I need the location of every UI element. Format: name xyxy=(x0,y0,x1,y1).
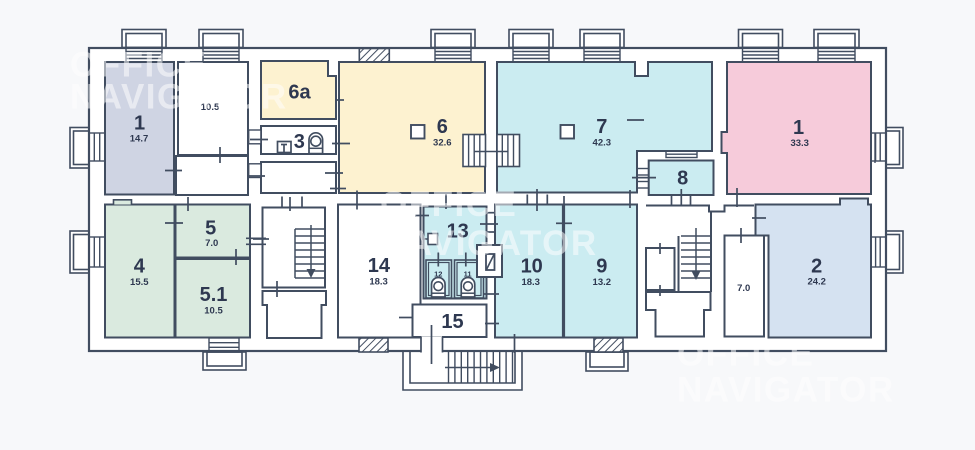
svg-text:18.3: 18.3 xyxy=(521,277,540,288)
svg-text:33.3: 33.3 xyxy=(790,138,809,149)
svg-text:42.3: 42.3 xyxy=(593,138,612,149)
svg-text:11: 11 xyxy=(464,269,472,278)
svg-text:18.3: 18.3 xyxy=(369,277,388,288)
svg-text:OFFICE: OFFICE xyxy=(380,185,517,224)
svg-text:5: 5 xyxy=(205,218,216,240)
svg-text:OFFICE: OFFICE xyxy=(677,335,814,374)
svg-text:32.6: 32.6 xyxy=(433,138,452,149)
svg-text:12: 12 xyxy=(434,269,442,278)
svg-text:15: 15 xyxy=(441,311,463,333)
svg-text:10.5: 10.5 xyxy=(204,306,223,317)
svg-text:2: 2 xyxy=(811,255,822,277)
svg-text:8: 8 xyxy=(677,167,688,189)
svg-text:7.0: 7.0 xyxy=(205,238,218,249)
svg-text:6: 6 xyxy=(437,116,448,138)
svg-text:9: 9 xyxy=(596,255,607,277)
svg-text:NAVIGATOR: NAVIGATOR xyxy=(70,78,288,117)
svg-text:7: 7 xyxy=(596,116,607,138)
svg-text:5.1: 5.1 xyxy=(200,284,228,306)
svg-text:13.2: 13.2 xyxy=(593,277,612,288)
svg-text:6a: 6a xyxy=(288,82,311,104)
svg-text:24.2: 24.2 xyxy=(807,277,826,288)
svg-text:7.0: 7.0 xyxy=(737,283,750,294)
svg-text:15.5: 15.5 xyxy=(130,277,149,288)
svg-text:1: 1 xyxy=(793,117,804,139)
svg-text:4: 4 xyxy=(134,255,146,277)
svg-text:NAVIGATOR: NAVIGATOR xyxy=(677,371,895,410)
svg-text:14.7: 14.7 xyxy=(130,134,149,145)
svg-text:3: 3 xyxy=(294,131,305,153)
svg-text:NAVIGATOR: NAVIGATOR xyxy=(380,224,598,263)
